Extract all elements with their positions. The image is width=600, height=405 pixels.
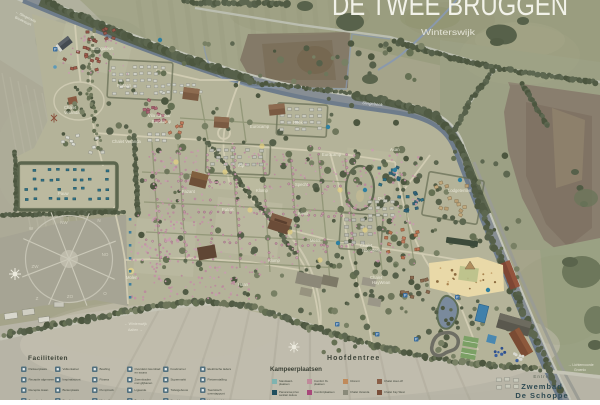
svg-text:Comfortplaatsen: Comfortplaatsen <box>314 390 335 394</box>
svg-text:Toiletgebouw: Toiletgebouw <box>171 388 189 392</box>
svg-text:Specht: Specht <box>295 182 309 187</box>
svg-text:Eurocamp: Eurocamp <box>322 152 342 157</box>
svg-text:Aalten →: Aalten → <box>128 328 143 332</box>
svg-text:Hoenderik: Hoenderik <box>362 248 382 253</box>
svg-text:DE TWEE BRUGGEN: DE TWEE BRUGGEN <box>332 0 568 22</box>
svg-text:en sauna: en sauna <box>135 370 148 374</box>
svg-text:N: N <box>97 218 100 223</box>
svg-text:Buitenplaats: Buitenplaats <box>63 388 80 392</box>
svg-text:overstappunt: overstappunt <box>208 391 226 395</box>
svg-text:Molen: Molen <box>126 275 138 280</box>
svg-text:Receptie algemeen: Receptie algemeen <box>29 378 55 382</box>
svg-text:Inforent: Inforent <box>350 379 360 383</box>
svg-text:Pauw: Pauw <box>58 191 69 196</box>
svg-text:Winterswijk: Winterswijk <box>421 28 476 37</box>
svg-text:Receptie Haan: Receptie Haan <box>29 388 49 392</box>
svg-text:Ligweide: Ligweide <box>135 388 147 392</box>
svg-text:Volkontainer: Volkontainer <box>63 367 80 371</box>
svg-text:Chalet Veranda: Chalet Veranda <box>350 390 370 394</box>
svg-text:ZO: ZO <box>67 294 74 299</box>
svg-text:Kip: Kip <box>238 163 245 168</box>
svg-text:O: O <box>103 291 107 296</box>
svg-text:sanitair deluxe: sanitair deluxe <box>279 393 297 397</box>
svg-text:Chalet Kay West: Chalet Kay West <box>384 390 405 394</box>
svg-text:Haan: Haan <box>238 282 249 287</box>
svg-text:Eurocamp: Eurocamp <box>152 119 172 124</box>
svg-text:Foodcorner: Foodcorner <box>171 367 186 371</box>
svg-text:Veranda: Veranda <box>64 110 80 115</box>
svg-text:Lodgetenten: Lodgetenten <box>448 188 472 193</box>
svg-text:Klomp: Klomp <box>268 258 281 263</box>
svg-text:Supermarkt: Supermarkt <box>171 378 187 382</box>
svg-text:← Winterswijk: ← Winterswijk <box>124 322 147 326</box>
svg-text:De Schoppe: De Schoppe <box>515 391 568 400</box>
svg-text:Roek: Roek <box>293 120 304 125</box>
svg-text:Bowling: Bowling <box>100 367 111 371</box>
svg-text:plaatsen: plaatsen <box>279 382 290 386</box>
svg-text:Bungalows: Bungalows <box>93 46 114 51</box>
svg-text:Pumptrack: Pumptrack <box>100 388 115 392</box>
svg-text:Chalet Hout-off: Chalet Hout-off <box>384 379 403 383</box>
svg-text:Kampeerplaatsen: Kampeerplaatsen <box>270 367 322 373</box>
svg-text:Z: Z <box>36 296 39 301</box>
svg-text:plaatsen: plaatsen <box>314 382 325 386</box>
svg-text:Axan: Axan <box>390 147 400 152</box>
svg-text:Vila Sambar: Vila Sambar <box>148 113 171 118</box>
svg-text:Chalet Veranda: Chalet Veranda <box>112 139 142 144</box>
svg-text:Klomp: Klomp <box>256 188 269 193</box>
svg-text:Entree: Entree <box>533 374 552 379</box>
svg-text:Duif: Duif <box>378 196 386 201</box>
svg-text:ZW: ZW <box>32 264 40 269</box>
svg-text:HayWean: HayWean <box>372 280 391 285</box>
svg-text:Hoofdentree: Hoofdentree <box>327 355 380 362</box>
svg-text:Kievit: Kievit <box>298 211 309 216</box>
svg-text:NW: NW <box>60 220 68 225</box>
svg-text:Zwembad: Zwembad <box>521 382 563 391</box>
svg-text:Parkeerplaats: Parkeerplaats <box>29 367 48 371</box>
svg-text:Fazant: Fazant <box>182 189 196 194</box>
svg-text:Faciliteiten: Faciliteiten <box>28 355 68 362</box>
svg-text:Fitness: Fitness <box>100 378 110 382</box>
svg-text:NO: NO <box>102 252 109 257</box>
svg-text:Patrijs: Patrijs <box>222 207 234 212</box>
svg-text:Elektrische laders: Elektrische laders <box>208 367 232 371</box>
svg-text:Fietsenstalling: Fietsenstalling <box>208 378 228 382</box>
svg-text:Merel: Merel <box>310 238 321 243</box>
svg-text:Inspiratiepunt: Inspiratiepunt <box>63 378 81 382</box>
svg-text:→ Lichtenvoorde: → Lichtenvoorde <box>568 363 594 367</box>
svg-text:Plataan: Plataan <box>117 83 132 88</box>
svg-text:met glijbanen: met glijbanen <box>135 381 153 385</box>
svg-text:Eurocamp: Eurocamp <box>250 124 270 129</box>
svg-text:Groenlo: Groenlo <box>574 368 586 372</box>
